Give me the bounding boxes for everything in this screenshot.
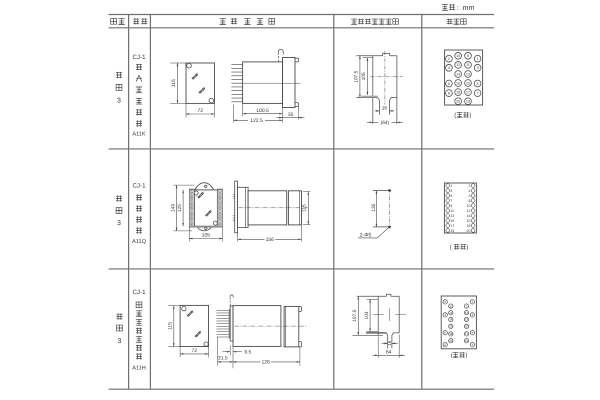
svg-text:4: 4 <box>448 66 450 70</box>
svg-text:64: 64 <box>386 350 392 356</box>
svg-text:2: 2 <box>469 184 471 188</box>
svg-text:CJ-1: CJ-1 <box>132 54 146 61</box>
svg-text:14: 14 <box>456 72 460 76</box>
svg-text:5: 5 <box>450 194 452 198</box>
svg-text:): ) <box>469 112 471 119</box>
svg-text:126: 126 <box>262 360 271 366</box>
svg-text:2-Φ5: 2-Φ5 <box>360 233 372 239</box>
svg-text:12: 12 <box>467 209 471 213</box>
svg-text:14: 14 <box>449 318 453 322</box>
svg-text:CJ-1: CJ-1 <box>132 289 146 296</box>
svg-text:13: 13 <box>466 72 470 76</box>
svg-text:(64): (64) <box>381 120 390 126</box>
svg-text:7: 7 <box>477 91 479 95</box>
svg-text:11: 11 <box>450 209 454 213</box>
svg-text:72: 72 <box>192 348 198 354</box>
svg-text:6: 6 <box>469 194 471 198</box>
svg-text:3: 3 <box>117 98 121 105</box>
svg-text:3: 3 <box>118 338 122 345</box>
svg-text:19: 19 <box>466 99 470 103</box>
svg-text:3: 3 <box>450 189 452 193</box>
svg-text:4: 4 <box>469 189 471 193</box>
svg-text:20: 20 <box>467 229 471 233</box>
svg-text:16: 16 <box>382 105 388 111</box>
svg-text:20: 20 <box>449 339 453 343</box>
svg-text:12: 12 <box>449 311 453 315</box>
svg-text:1: 1 <box>477 57 479 61</box>
svg-text:CJ-1: CJ-1 <box>132 183 146 190</box>
svg-text:(: ( <box>450 244 452 251</box>
svg-text:16: 16 <box>456 81 460 85</box>
svg-text:10: 10 <box>456 54 460 58</box>
svg-text:115: 115 <box>171 79 177 87</box>
svg-text:3: 3 <box>477 66 479 70</box>
svg-text:10: 10 <box>449 304 453 308</box>
svg-text:9: 9 <box>467 54 469 58</box>
svg-text:35: 35 <box>288 112 294 118</box>
svg-text:16: 16 <box>449 325 453 329</box>
svg-text:5: 5 <box>477 82 479 86</box>
svg-text:9.5: 9.5 <box>244 350 251 356</box>
svg-text:149: 149 <box>170 204 176 212</box>
svg-text:8: 8 <box>469 199 471 203</box>
svg-text:11: 11 <box>466 63 470 67</box>
svg-text:(: ( <box>451 352 453 359</box>
svg-text:2: 2 <box>448 57 450 61</box>
svg-text:A11Q: A11Q <box>132 239 147 245</box>
svg-text:mm: mm <box>463 3 475 12</box>
svg-text:18: 18 <box>449 332 453 336</box>
svg-text::: : <box>457 5 459 12</box>
svg-text:107.5: 107.5 <box>353 70 359 82</box>
svg-text:14: 14 <box>467 214 471 218</box>
svg-text:31.5: 31.5 <box>218 356 228 362</box>
svg-text:1: 1 <box>450 184 452 188</box>
svg-text:7: 7 <box>450 199 452 203</box>
svg-text:100.5: 100.5 <box>256 108 269 114</box>
svg-text:105: 105 <box>202 233 211 239</box>
svg-text:18: 18 <box>467 224 471 228</box>
svg-text:13: 13 <box>465 318 469 322</box>
svg-text:72: 72 <box>197 108 203 114</box>
svg-text:13: 13 <box>450 214 454 218</box>
svg-text:17: 17 <box>466 90 470 94</box>
svg-text:12: 12 <box>456 63 460 67</box>
svg-text:20: 20 <box>456 99 460 103</box>
svg-text:115: 115 <box>301 204 307 212</box>
svg-text:125: 125 <box>177 204 183 212</box>
svg-text:15: 15 <box>466 81 470 85</box>
svg-text:16: 16 <box>387 340 392 345</box>
svg-text:11: 11 <box>465 311 468 315</box>
svg-text:9: 9 <box>450 204 452 208</box>
svg-text:6: 6 <box>448 82 450 86</box>
svg-text:16: 16 <box>467 219 471 223</box>
svg-text:19: 19 <box>450 229 454 233</box>
svg-text:10: 10 <box>467 204 471 208</box>
svg-text:8: 8 <box>448 91 450 95</box>
svg-text:A11H: A11H <box>132 366 146 372</box>
svg-text:17: 17 <box>465 332 469 336</box>
svg-text:107.5: 107.5 <box>352 309 358 321</box>
svg-text:): ) <box>465 352 467 359</box>
svg-text:): ) <box>466 244 468 251</box>
svg-text:3: 3 <box>117 220 121 227</box>
svg-text:15: 15 <box>465 325 469 329</box>
svg-text:156: 156 <box>266 237 275 243</box>
svg-text:17: 17 <box>450 224 454 228</box>
svg-text:135: 135 <box>371 203 377 211</box>
svg-text:18: 18 <box>456 90 460 94</box>
svg-text:104: 104 <box>364 311 370 319</box>
svg-text:A11K: A11K <box>132 132 146 138</box>
svg-text:15: 15 <box>450 219 454 223</box>
svg-text:115: 115 <box>168 322 174 330</box>
svg-text:105: 105 <box>361 72 367 80</box>
svg-text:122.5: 122.5 <box>250 118 263 124</box>
svg-text:(: ( <box>454 112 456 119</box>
svg-text:19: 19 <box>465 339 469 343</box>
